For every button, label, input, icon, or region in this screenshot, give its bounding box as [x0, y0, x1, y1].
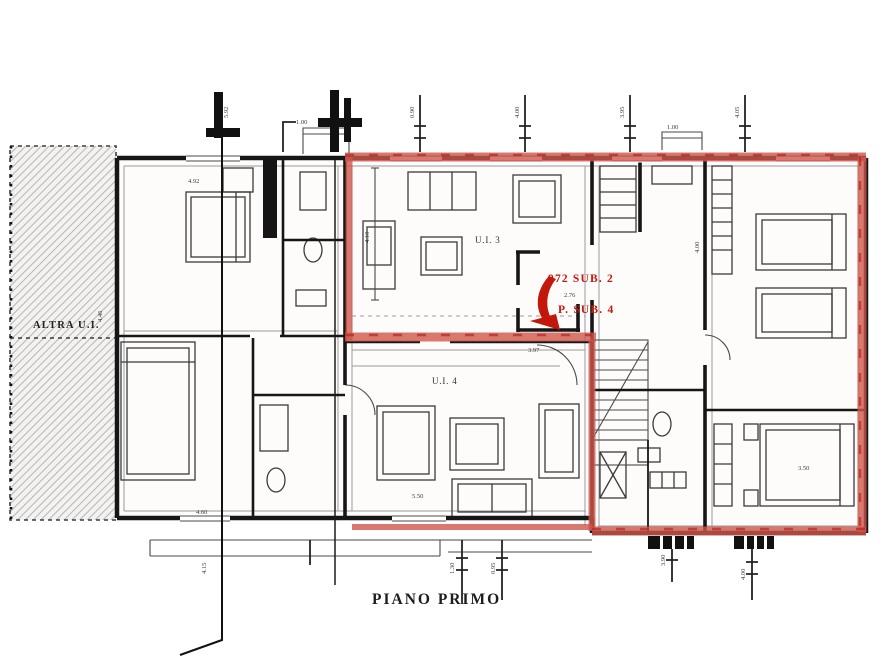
dimension-label: 3.50: [798, 465, 809, 472]
window: [392, 514, 446, 523]
floor-plan-drawing: 972 SUB. 2 P. SUB. 4 U.I. 3 U.I. 4 ALTRA…: [0, 0, 893, 670]
dimension-label: 4.10: [364, 232, 371, 243]
chimney-block: [263, 160, 277, 238]
unit-3-label: U.I. 3: [475, 235, 501, 245]
window: [186, 154, 240, 163]
dimension-label: 4.05: [734, 107, 741, 118]
dimension-label: 3.97: [528, 347, 540, 354]
bottom-sill-bars: [648, 536, 774, 549]
dimension-label: 3.95: [619, 107, 626, 118]
dimension-label: 5.92: [223, 107, 230, 118]
dimension-label: 0.90: [409, 107, 416, 118]
floor-title: PIANO PRIMO: [372, 591, 501, 608]
cadastral-label-1: 972 SUB. 2: [548, 273, 614, 285]
adjacent-unit-label: ALTRA U.I.: [33, 320, 100, 331]
hatch-fill: [10, 146, 116, 520]
dimension-label: 2.76: [564, 292, 576, 299]
dimension-label: 4.60: [196, 509, 207, 516]
top-step: [662, 132, 702, 150]
unit-4-label: U.I. 4: [432, 376, 458, 386]
adjacent-unit-hatch: [10, 146, 116, 520]
dimension-label: 4.00: [514, 107, 521, 118]
dimension-label: 0.95: [490, 563, 497, 574]
cadastral-label-2: P. SUB. 4: [558, 304, 614, 316]
dimension-label: 1.30: [449, 563, 456, 574]
dimension-label: 4.00: [740, 569, 747, 580]
dimension-label: 4.46: [97, 310, 104, 322]
dimension-label: 4.92: [188, 178, 199, 185]
dimension-label: 5.50: [412, 493, 423, 500]
top-balcony: [303, 128, 349, 154]
dimension-label: 4.00: [694, 242, 701, 253]
building-footprint: [117, 158, 866, 533]
dimension-label: 1.00: [667, 124, 678, 131]
dimension-label: 4.15: [201, 563, 208, 574]
floor-plan-page: 972 SUB. 2 P. SUB. 4 U.I. 3 U.I. 4 ALTRA…: [0, 0, 893, 670]
dimension-label: 1.00: [296, 119, 307, 126]
dimension-label: 3.90: [660, 555, 667, 566]
